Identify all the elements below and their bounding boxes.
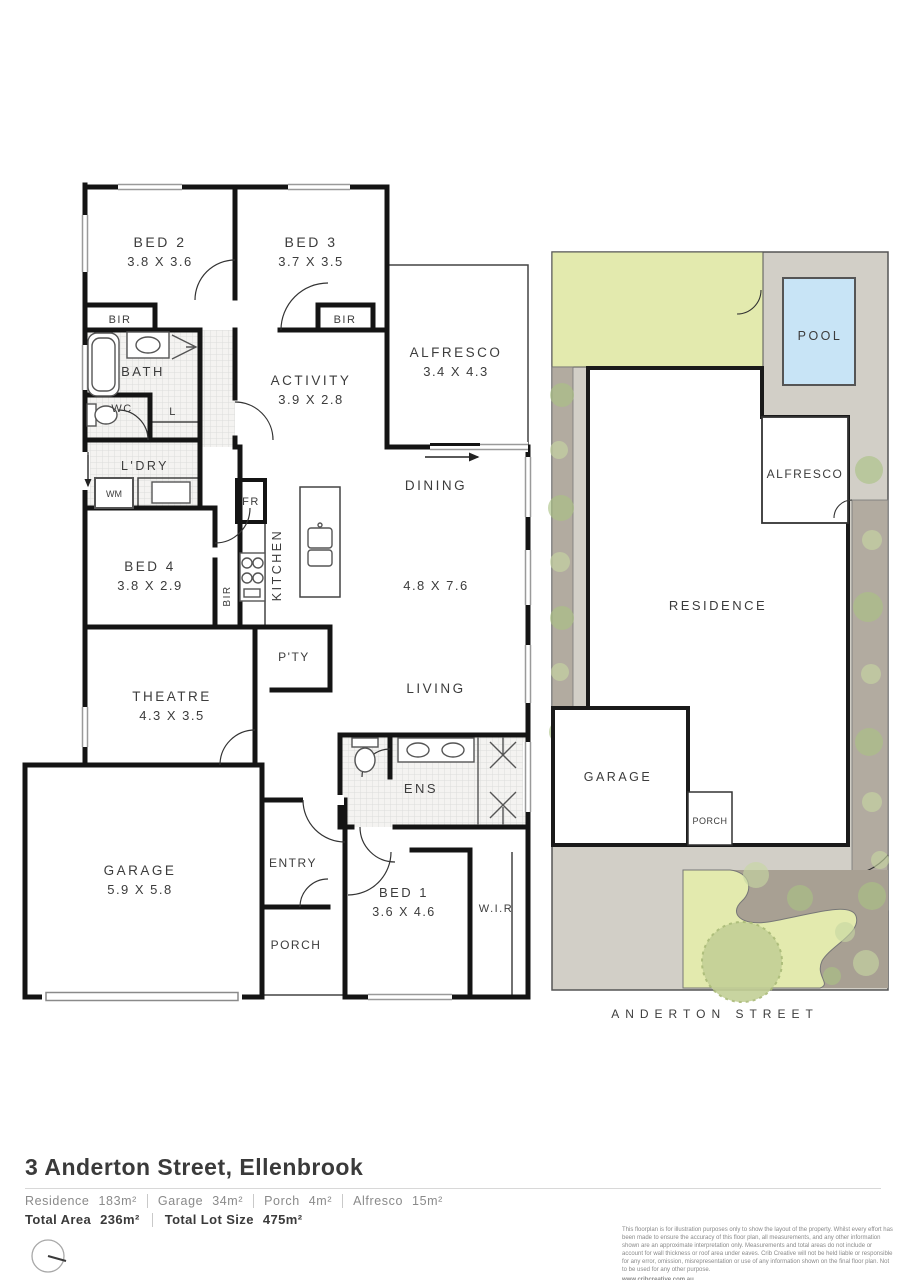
ens-vanity	[398, 738, 474, 762]
room-dims-living: 4.8 X 7.6	[403, 578, 469, 593]
areas-row: Residence 183m² Garage 34m² Porch 4m² Al…	[25, 1194, 453, 1208]
divider	[25, 1188, 881, 1189]
area-alfresco: Alfresco 15m²	[353, 1194, 443, 1208]
room-label-garage: GARAGE	[104, 863, 177, 878]
site-label-garage: GARAGE	[584, 770, 653, 784]
sliding-door	[425, 442, 528, 457]
area-garage: Garage 34m²	[158, 1194, 243, 1208]
room-label-bir3: BIR	[334, 314, 357, 326]
room-label-bed2: BED 2	[134, 234, 187, 250]
room-label-laundry: L'DRY	[121, 459, 169, 473]
site-rear-lawn	[552, 252, 763, 367]
total-lot-size: Total Lot Size 475m²	[165, 1212, 303, 1227]
room-label-porch: PORCH	[271, 938, 322, 952]
room-dims-alfresco: 3.4 X 4.3	[423, 364, 489, 379]
room-label-dining: DINING	[405, 478, 467, 493]
room-label-alfresco: ALFRESCO	[410, 345, 503, 360]
street-label: ANDERTON STREET	[611, 1007, 819, 1021]
room-dims-garage: 5.9 X 5.8	[107, 882, 173, 897]
totals-row: Total Area 236m² Total Lot Size 475m²	[25, 1212, 314, 1227]
room-dims-bed3: 3.7 X 3.5	[278, 254, 344, 269]
site-label-residence: RESIDENCE	[669, 598, 767, 613]
plan-canvas: BED 2 3.8 X 3.6 BED 3 3.7 X 3.5 ALFRESCO…	[0, 0, 904, 1130]
site-label-pool: POOL	[798, 329, 843, 343]
separator	[253, 1194, 254, 1208]
site-plan: POOL ALFRESCO RESIDENCE GARAGE PORCH AND…	[548, 252, 889, 1021]
page-title: 3 Anderton Street, Ellenbrook	[25, 1154, 363, 1181]
garage-door	[42, 990, 242, 1003]
room-label-wir: W.I.R	[479, 903, 513, 915]
room-dims-bed4: 3.8 X 2.9	[117, 578, 183, 593]
room-dims-activity: 3.9 X 2.8	[278, 392, 344, 407]
room-label-theatre: THEATRE	[132, 689, 212, 704]
sink	[308, 523, 332, 566]
room-dims-bed1: 3.6 X 4.6	[372, 905, 436, 919]
separator	[342, 1194, 343, 1208]
room-label-fridge: FR	[242, 496, 260, 508]
room-label-wc: WC	[111, 403, 132, 415]
room-label-ens: ENS	[404, 781, 438, 796]
room-label-kitchen: KITCHEN	[270, 529, 284, 601]
room-label-linen: L	[169, 406, 177, 418]
room-label-entry: ENTRY	[269, 856, 317, 870]
room-dims-theatre: 4.3 X 3.5	[139, 708, 205, 723]
site-big-tree	[702, 922, 782, 1002]
room-label-bed1: BED 1	[379, 885, 429, 900]
room-label-bath: BATH	[121, 364, 165, 379]
website-url: www.cribcreative.com.au	[622, 1276, 894, 1280]
room-label-activity: ACTIVITY	[271, 373, 352, 388]
separator	[152, 1213, 153, 1227]
laundry-door	[80, 452, 90, 490]
room-dims-bed2: 3.8 X 3.6	[127, 254, 193, 269]
floor-plan: BED 2 3.8 X 3.6 BED 3 3.7 X 3.5 ALFRESCO…	[25, 182, 533, 1003]
area-porch: Porch 4m²	[264, 1194, 332, 1208]
compass-icon	[28, 1236, 72, 1280]
disclaimer-text: This floorplan is for illustration purpo…	[622, 1226, 894, 1275]
site-label-alfresco: ALFRESCO	[767, 467, 844, 481]
area-residence: Residence 183m²	[25, 1194, 137, 1208]
cooktop	[240, 553, 265, 601]
room-label-bir2: BIR	[109, 314, 132, 326]
site-label-porch: PORCH	[692, 816, 727, 826]
room-label-living: LIVING	[406, 681, 465, 696]
floorplan-page: BED 2 3.8 X 3.6 BED 3 3.7 X 3.5 ALFRESCO…	[0, 0, 904, 1280]
room-label-wm: WM	[106, 489, 122, 499]
room-label-bed3: BED 3	[285, 234, 338, 250]
room-label-bed4: BED 4	[124, 559, 176, 574]
site-right-strip	[852, 500, 888, 910]
separator	[147, 1194, 148, 1208]
room-label-bir4: BIR	[222, 585, 233, 606]
total-area: Total Area 236m²	[25, 1212, 140, 1227]
room-label-pantry: P'TY	[278, 650, 310, 664]
disclaimer: This floorplan is for illustration purpo…	[622, 1226, 894, 1280]
